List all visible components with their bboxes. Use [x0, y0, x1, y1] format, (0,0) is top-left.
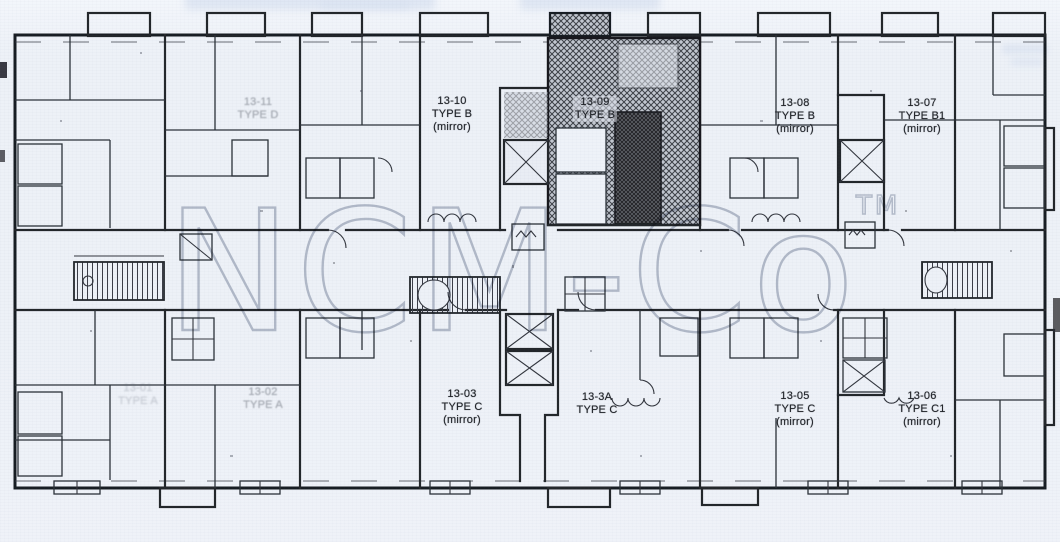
unit-label-13-09: 13-09 TYPE B [573, 96, 617, 122]
unit-type: TYPE A [118, 395, 158, 408]
unit-number: 13-06 [898, 390, 945, 403]
unit-type: TYPE A [243, 399, 283, 412]
unit-type: TYPE B [775, 110, 815, 123]
service-rooms [180, 222, 887, 358]
unit-type: TYPE B1 [899, 110, 946, 123]
unit-number: 13-09 [575, 96, 615, 109]
unit-label-13-06: 13-06 TYPE C1 (mirror) [898, 390, 945, 429]
unit-number: 13-3A [577, 391, 618, 404]
floor-plan-drawing [0, 0, 1060, 542]
unit-number: 13-01 [118, 382, 158, 395]
unit-number: 13-10 [432, 95, 472, 108]
unit-type: TYPE C [775, 403, 816, 416]
unit-mirror-note: (mirror) [775, 416, 816, 429]
unit-mirror-note: (mirror) [898, 416, 945, 429]
unit-label-13-08: 13-08 TYPE B (mirror) [775, 97, 815, 136]
unit-number: 13-05 [775, 390, 816, 403]
unit-mirror-note: (mirror) [775, 123, 815, 136]
unit-number: 13-11 [238, 96, 279, 109]
scanned-floor-plan-page: 13-11 TYPE D 13-10 TYPE B (mirror) 13-09… [0, 0, 1060, 542]
unit-type: TYPE B [575, 109, 615, 122]
unit-number: 13-08 [775, 97, 815, 110]
unit-label-13-11: 13-11 TYPE D [238, 96, 279, 122]
unit-type: TYPE C [577, 404, 618, 417]
stairwells [74, 256, 992, 313]
unit-number: 13-02 [243, 386, 283, 399]
unit-label-13-03: 13-03 TYPE C (mirror) [442, 388, 483, 427]
unit-type: TYPE D [238, 109, 279, 122]
shaded-unit-13-09 [504, 38, 700, 225]
unit-label-13-07: 13-07 TYPE B1 (mirror) [899, 97, 946, 136]
plan-linework [0, 13, 1060, 507]
unit-mirror-note: (mirror) [442, 414, 483, 427]
unit-number: 13-07 [899, 97, 946, 110]
unit-label-13-05: 13-05 TYPE C (mirror) [775, 390, 816, 429]
unit-label-13-3A: 13-3A TYPE C [577, 391, 618, 417]
corridor-walls [15, 230, 1045, 310]
unit-type: TYPE C1 [898, 403, 945, 416]
unit-type: TYPE B [432, 108, 472, 121]
unit-type: TYPE C [442, 401, 483, 414]
unit-number: 13-03 [442, 388, 483, 401]
unit-mirror-note: (mirror) [432, 121, 472, 134]
unit-label-13-02: 13-02 TYPE A [243, 386, 283, 412]
unit-label-13-01: 13-01 TYPE A [118, 382, 158, 408]
unit-label-13-10: 13-10 TYPE B (mirror) [432, 95, 472, 134]
unit-mirror-note: (mirror) [899, 123, 946, 136]
